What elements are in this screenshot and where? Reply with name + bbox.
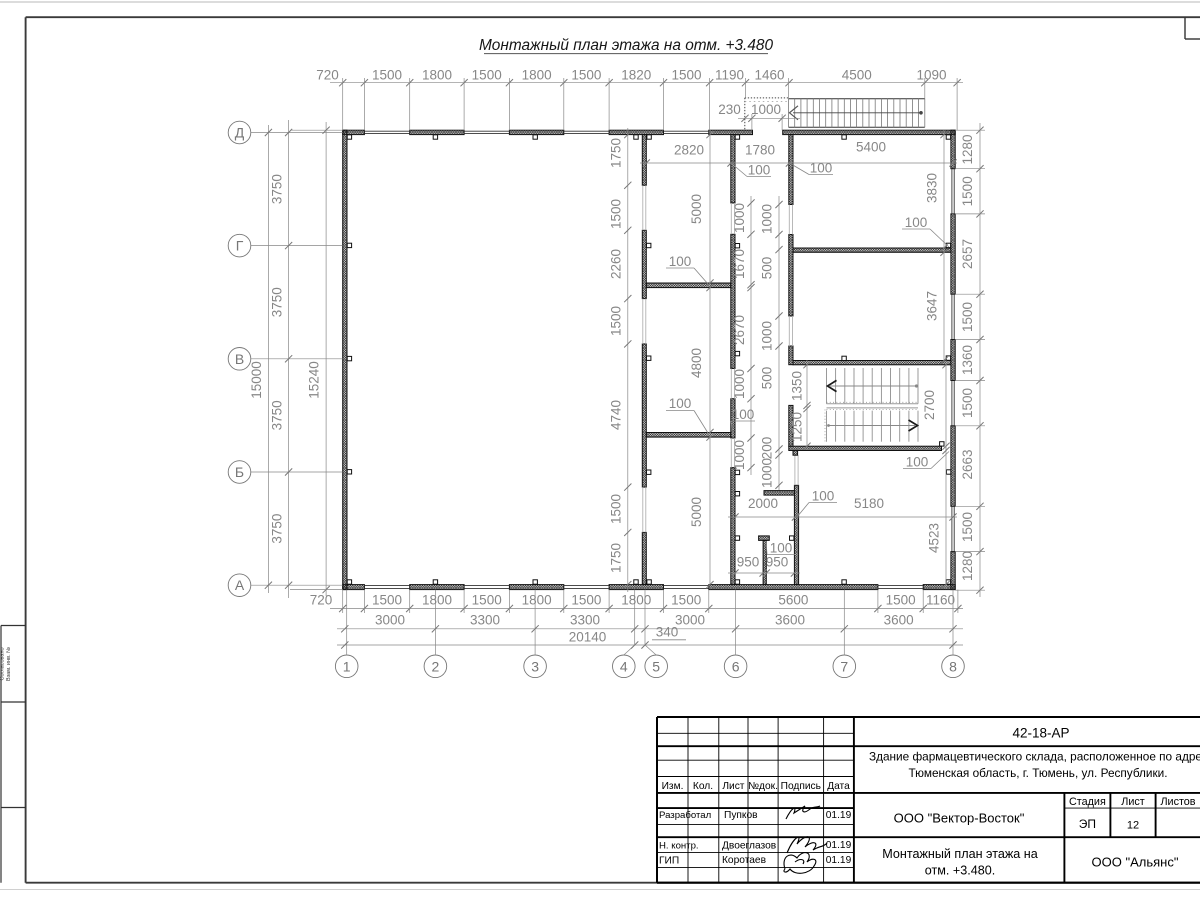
svg-text:1000: 1000 [760, 204, 775, 234]
svg-text:1000: 1000 [732, 203, 747, 233]
svg-text:1500: 1500 [609, 199, 624, 229]
svg-text:4: 4 [620, 658, 628, 674]
svg-text:1780: 1780 [745, 143, 775, 158]
svg-text:01.19: 01.19 [826, 855, 852, 866]
svg-text:6: 6 [732, 658, 740, 674]
svg-text:1820: 1820 [621, 67, 651, 82]
svg-text:Дата: Дата [827, 781, 850, 792]
svg-text:100: 100 [748, 163, 771, 178]
svg-text:5180: 5180 [854, 496, 884, 511]
svg-text:1000: 1000 [760, 321, 775, 351]
svg-text:100: 100 [905, 215, 928, 230]
svg-text:1500: 1500 [609, 306, 624, 336]
svg-text:3600: 3600 [884, 613, 914, 628]
svg-text:Пупков: Пупков [724, 810, 758, 821]
svg-text:720: 720 [316, 67, 339, 82]
svg-text:01.19: 01.19 [826, 840, 852, 851]
svg-text:500: 500 [760, 257, 775, 280]
svg-text:1500: 1500 [372, 67, 402, 82]
svg-text:1500: 1500 [571, 67, 601, 82]
svg-text:2657: 2657 [960, 239, 975, 269]
svg-text:ЭП: ЭП [1079, 817, 1096, 831]
svg-text:Двоеглазов: Двоеглазов [722, 841, 776, 852]
svg-text:Монтажный план этажа на отм. +: Монтажный план этажа на отм. +3.480 [479, 37, 773, 54]
svg-text:Д: Д [235, 125, 245, 141]
svg-text:950: 950 [766, 555, 789, 570]
svg-text:01.19: 01.19 [826, 810, 852, 821]
svg-text:3750: 3750 [270, 287, 285, 317]
svg-text:720: 720 [310, 593, 333, 608]
svg-text:1280: 1280 [960, 551, 975, 581]
svg-text:Подпись: Подпись [781, 781, 821, 792]
svg-text:Кол.: Кол. [693, 781, 713, 792]
svg-text:Лист: Лист [722, 781, 744, 792]
svg-text:А: А [235, 577, 245, 593]
svg-text:1500: 1500 [372, 593, 402, 608]
svg-text:3000: 3000 [375, 613, 405, 628]
svg-text:Здание фармацевтического склад: Здание фармацевтического склада, располо… [869, 750, 1200, 764]
svg-text:42-18-АР: 42-18-АР [1012, 726, 1069, 741]
svg-text:5600: 5600 [778, 593, 808, 608]
svg-text:1500: 1500 [571, 593, 601, 608]
svg-text:2260: 2260 [609, 249, 624, 279]
svg-text:3000: 3000 [675, 613, 705, 628]
svg-text:Взам. инв. №: Взам. инв. № [6, 647, 12, 681]
svg-text:Листов: Листов [1160, 796, 1195, 808]
svg-text:1: 1 [343, 658, 351, 674]
svg-text:1500: 1500 [472, 593, 502, 608]
svg-text:Изм.: Изм. [662, 781, 684, 792]
svg-text:8: 8 [949, 658, 957, 674]
svg-text:100: 100 [669, 254, 692, 269]
svg-text:Н. контр.: Н. контр. [659, 841, 699, 852]
svg-text:1000: 1000 [732, 369, 747, 399]
svg-text:1800: 1800 [422, 593, 452, 608]
svg-text:100: 100 [906, 455, 929, 470]
svg-text:15240: 15240 [307, 361, 322, 399]
svg-text:3750: 3750 [270, 514, 285, 544]
svg-text:100: 100 [810, 161, 833, 176]
svg-text:12: 12 [1127, 820, 1139, 832]
svg-text:2: 2 [432, 658, 440, 674]
svg-text:1500: 1500 [960, 176, 975, 206]
svg-text:1500: 1500 [671, 593, 701, 608]
svg-text:20140: 20140 [569, 630, 607, 645]
svg-text:Разработал: Разработал [659, 810, 711, 821]
svg-text:3300: 3300 [470, 613, 500, 628]
svg-text:1800: 1800 [522, 67, 552, 82]
svg-text:1500: 1500 [960, 302, 975, 332]
svg-text:1800: 1800 [522, 593, 552, 608]
svg-text:1280: 1280 [960, 134, 975, 164]
svg-text:340: 340 [656, 625, 679, 640]
svg-text:2820: 2820 [674, 143, 704, 158]
svg-text:200: 200 [760, 437, 775, 460]
svg-text:100: 100 [732, 407, 755, 422]
svg-text:3: 3 [531, 658, 539, 674]
svg-text:1090: 1090 [916, 67, 946, 82]
svg-text:100: 100 [770, 541, 793, 556]
svg-text:ООО "Вектор-Восток": ООО "Вектор-Восток" [894, 811, 1025, 826]
svg-text:5000: 5000 [689, 194, 704, 224]
svg-text:1000: 1000 [760, 458, 775, 488]
svg-text:1800: 1800 [422, 67, 452, 82]
svg-text:3600: 3600 [775, 613, 805, 628]
svg-text:1500: 1500 [609, 494, 624, 524]
svg-text:1250: 1250 [790, 412, 805, 442]
svg-text:1350: 1350 [790, 371, 805, 401]
svg-text:отм. +3.480.: отм. +3.480. [925, 864, 996, 878]
svg-text:4740: 4740 [609, 400, 624, 430]
svg-text:Согласовано: Согласовано [0, 647, 6, 680]
svg-text:Г: Г [236, 238, 244, 254]
svg-text:1500: 1500 [472, 67, 502, 82]
svg-text:Лист: Лист [1121, 796, 1145, 808]
svg-text:1500: 1500 [886, 593, 916, 608]
svg-text:15000: 15000 [249, 361, 264, 399]
svg-text:1000: 1000 [751, 102, 781, 117]
svg-text:№док.: №док. [748, 781, 778, 792]
svg-text:230: 230 [718, 102, 741, 117]
svg-text:1750: 1750 [609, 138, 624, 168]
svg-text:1750: 1750 [609, 543, 624, 573]
svg-text:1190: 1190 [715, 67, 744, 82]
svg-text:1500: 1500 [671, 67, 701, 82]
svg-text:2000: 2000 [748, 496, 778, 511]
svg-text:Монтажный план этажа на: Монтажный план этажа на [882, 847, 1037, 861]
svg-text:100: 100 [812, 489, 835, 504]
svg-text:1670: 1670 [732, 249, 747, 279]
svg-text:1160: 1160 [926, 593, 955, 608]
svg-text:3750: 3750 [270, 400, 285, 430]
svg-text:1460: 1460 [754, 67, 784, 82]
svg-text:Коротаев: Коротаев [722, 855, 766, 866]
svg-text:3647: 3647 [925, 291, 940, 321]
svg-text:Стадия: Стадия [1069, 796, 1106, 808]
svg-text:100: 100 [669, 396, 692, 411]
svg-text:2663: 2663 [960, 449, 975, 479]
svg-text:1000: 1000 [732, 440, 747, 470]
svg-text:5000: 5000 [689, 497, 704, 527]
svg-text:ООО "Альянс": ООО "Альянс" [1092, 855, 1179, 870]
svg-text:1800: 1800 [621, 593, 651, 608]
svg-text:2700: 2700 [922, 390, 937, 420]
svg-text:3750: 3750 [270, 174, 285, 204]
svg-text:7: 7 [840, 658, 848, 674]
svg-text:500: 500 [760, 367, 775, 390]
svg-text:1500: 1500 [960, 512, 975, 542]
svg-text:4800: 4800 [689, 348, 704, 378]
svg-text:4500: 4500 [842, 67, 872, 82]
svg-text:5: 5 [652, 658, 660, 674]
svg-text:2670: 2670 [732, 315, 747, 345]
svg-text:5400: 5400 [856, 140, 886, 155]
svg-text:1360: 1360 [960, 345, 975, 375]
svg-text:4523: 4523 [927, 523, 942, 553]
svg-text:Б: Б [235, 464, 244, 480]
svg-text:3830: 3830 [925, 173, 940, 203]
svg-text:В: В [235, 351, 244, 367]
svg-text:1500: 1500 [960, 388, 975, 418]
svg-text:ГИП: ГИП [659, 856, 679, 867]
svg-text:950: 950 [737, 555, 760, 570]
svg-text:3300: 3300 [570, 613, 600, 628]
svg-text:Тюменская область, г. Тюмень,: Тюменская область, г. Тюмень, ул. Респуб… [908, 766, 1167, 780]
